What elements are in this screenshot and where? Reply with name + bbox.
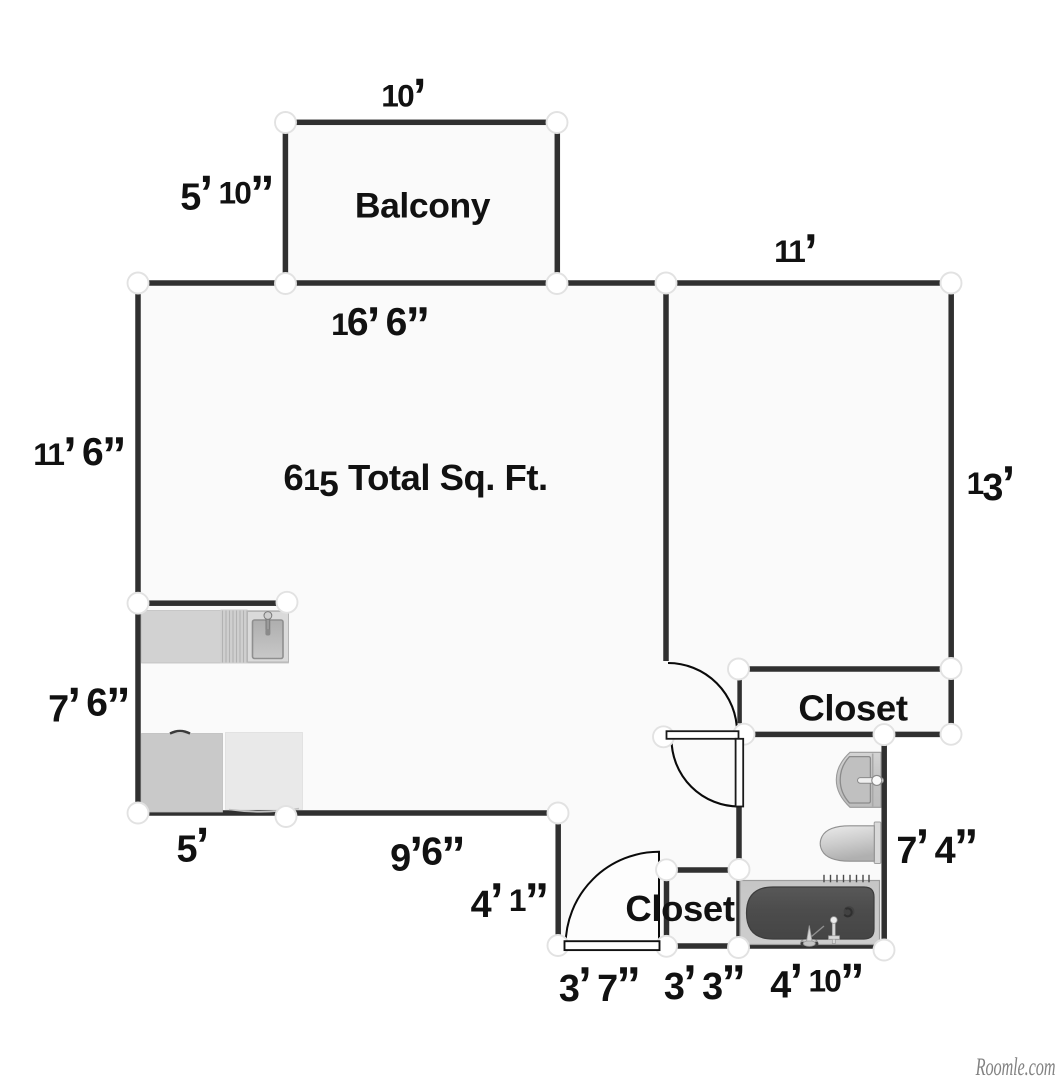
- svg-text:615 Total Sq. Ft.: 615 Total Sq. Ft.: [283, 457, 547, 504]
- svg-text:Balcony: Balcony: [355, 186, 491, 226]
- svg-text:Roomle.com: Roomle.com: [975, 1052, 1056, 1080]
- svg-text:Closet: Closet: [798, 688, 907, 729]
- svg-text:Closet: Closet: [625, 888, 734, 929]
